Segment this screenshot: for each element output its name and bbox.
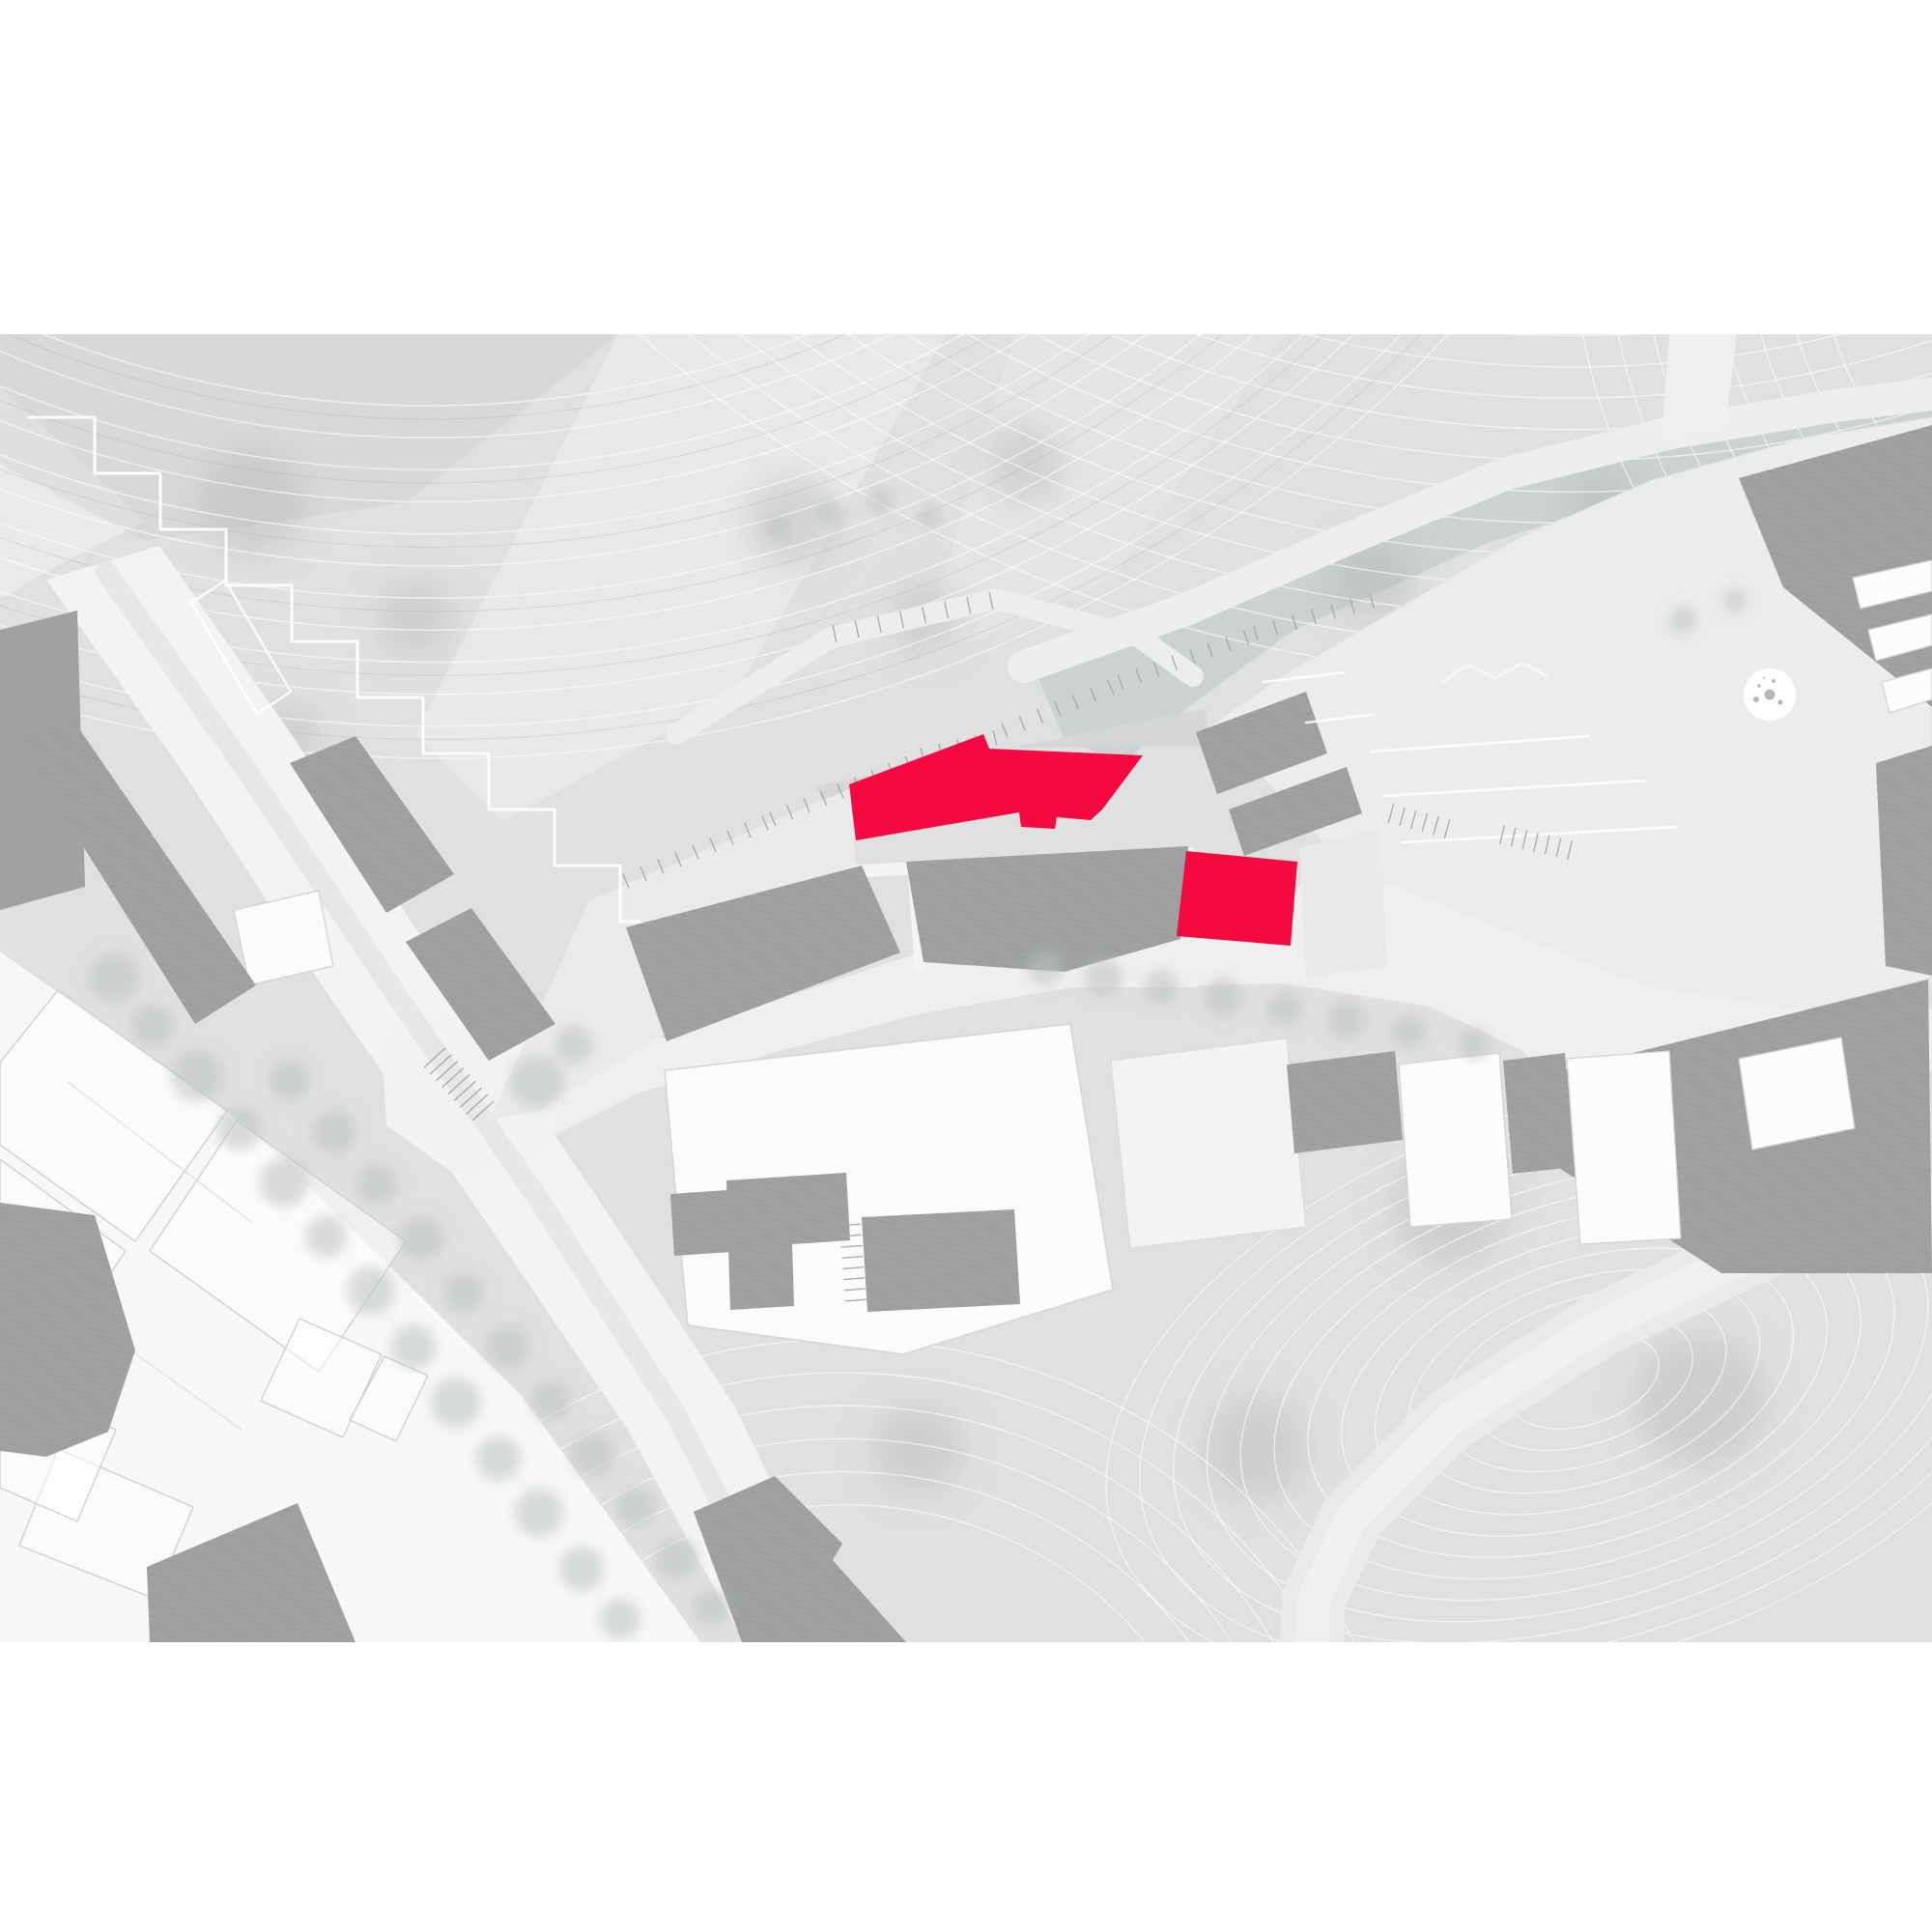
- roads-item: [1662, 334, 1737, 439]
- trees-item: [693, 1589, 729, 1626]
- trees-item: [1204, 978, 1242, 1016]
- trees-item: [443, 1272, 484, 1313]
- trees-item: [1669, 607, 1696, 634]
- trees-item: [356, 1164, 397, 1205]
- terrain-soft-spots-item: [1633, 1333, 1768, 1468]
- parcels-item: [1111, 1038, 1306, 1248]
- trees-item: [1084, 958, 1122, 997]
- fountain-item: [1753, 696, 1759, 702]
- trees-item: [391, 1324, 436, 1369]
- site-plan-page: [0, 0, 1932, 1932]
- roof-hatch-texture: [1503, 1053, 1575, 1174]
- trees-item: [554, 1026, 593, 1065]
- trees-item: [305, 1215, 348, 1258]
- site-plan-drawing: [0, 0, 1932, 1932]
- fountain-item: [1765, 690, 1776, 700]
- fountain-item: [1763, 677, 1765, 679]
- trees-item: [1327, 1001, 1366, 1039]
- terrain-soft-spots-item: [1203, 1396, 1309, 1502]
- trees-item: [600, 1599, 640, 1639]
- trees-item: [655, 1538, 697, 1580]
- trees-item: [766, 515, 791, 540]
- roof-hatch-texture: [862, 1209, 1020, 1312]
- fountain-item: [1757, 684, 1761, 688]
- trees-item: [486, 1324, 530, 1369]
- trees-item: [1723, 589, 1747, 612]
- fountain: [1744, 668, 1796, 721]
- fountain-item: [1772, 679, 1776, 683]
- trees-item: [515, 1489, 563, 1537]
- trees-item: [259, 1157, 309, 1207]
- trees-item: [1144, 970, 1179, 1005]
- trees-item: [1267, 991, 1302, 1026]
- trees-item: [1459, 1028, 1490, 1059]
- trees-item: [347, 1266, 395, 1315]
- trees-item: [217, 1106, 262, 1151]
- trees-item: [510, 1055, 564, 1109]
- roof-hatch-texture: [670, 1188, 759, 1256]
- trees-item: [431, 1378, 481, 1428]
- trees-item: [270, 1060, 310, 1100]
- trees-item: [815, 498, 842, 526]
- trees-item: [476, 1436, 521, 1481]
- building-white: [1567, 1051, 1681, 1244]
- trees-item: [312, 1110, 356, 1154]
- trees-item: [1391, 1014, 1426, 1049]
- trees-item: [559, 1547, 604, 1591]
- building-highlight-small: [1177, 851, 1297, 946]
- terrain-soft-spots-item: [377, 580, 454, 657]
- trees-item: [1028, 951, 1063, 985]
- trees-item: [399, 1216, 443, 1261]
- trees-item: [131, 1005, 174, 1047]
- map-band: [0, 0, 1932, 1932]
- roof-hatch-texture: [1287, 1051, 1403, 1153]
- building-white: [1399, 1053, 1512, 1227]
- trees-item: [615, 1487, 656, 1527]
- terrain-soft-spots-item: [198, 449, 304, 555]
- roads-item: [1299, 827, 1387, 978]
- trees-item: [571, 1433, 615, 1477]
- trees-item: [89, 952, 139, 1003]
- trees-item: [868, 488, 894, 513]
- trees-item: [530, 1380, 571, 1421]
- fountain-item: [1778, 700, 1783, 705]
- trees-item: [171, 1050, 223, 1102]
- trees-item: [918, 506, 941, 529]
